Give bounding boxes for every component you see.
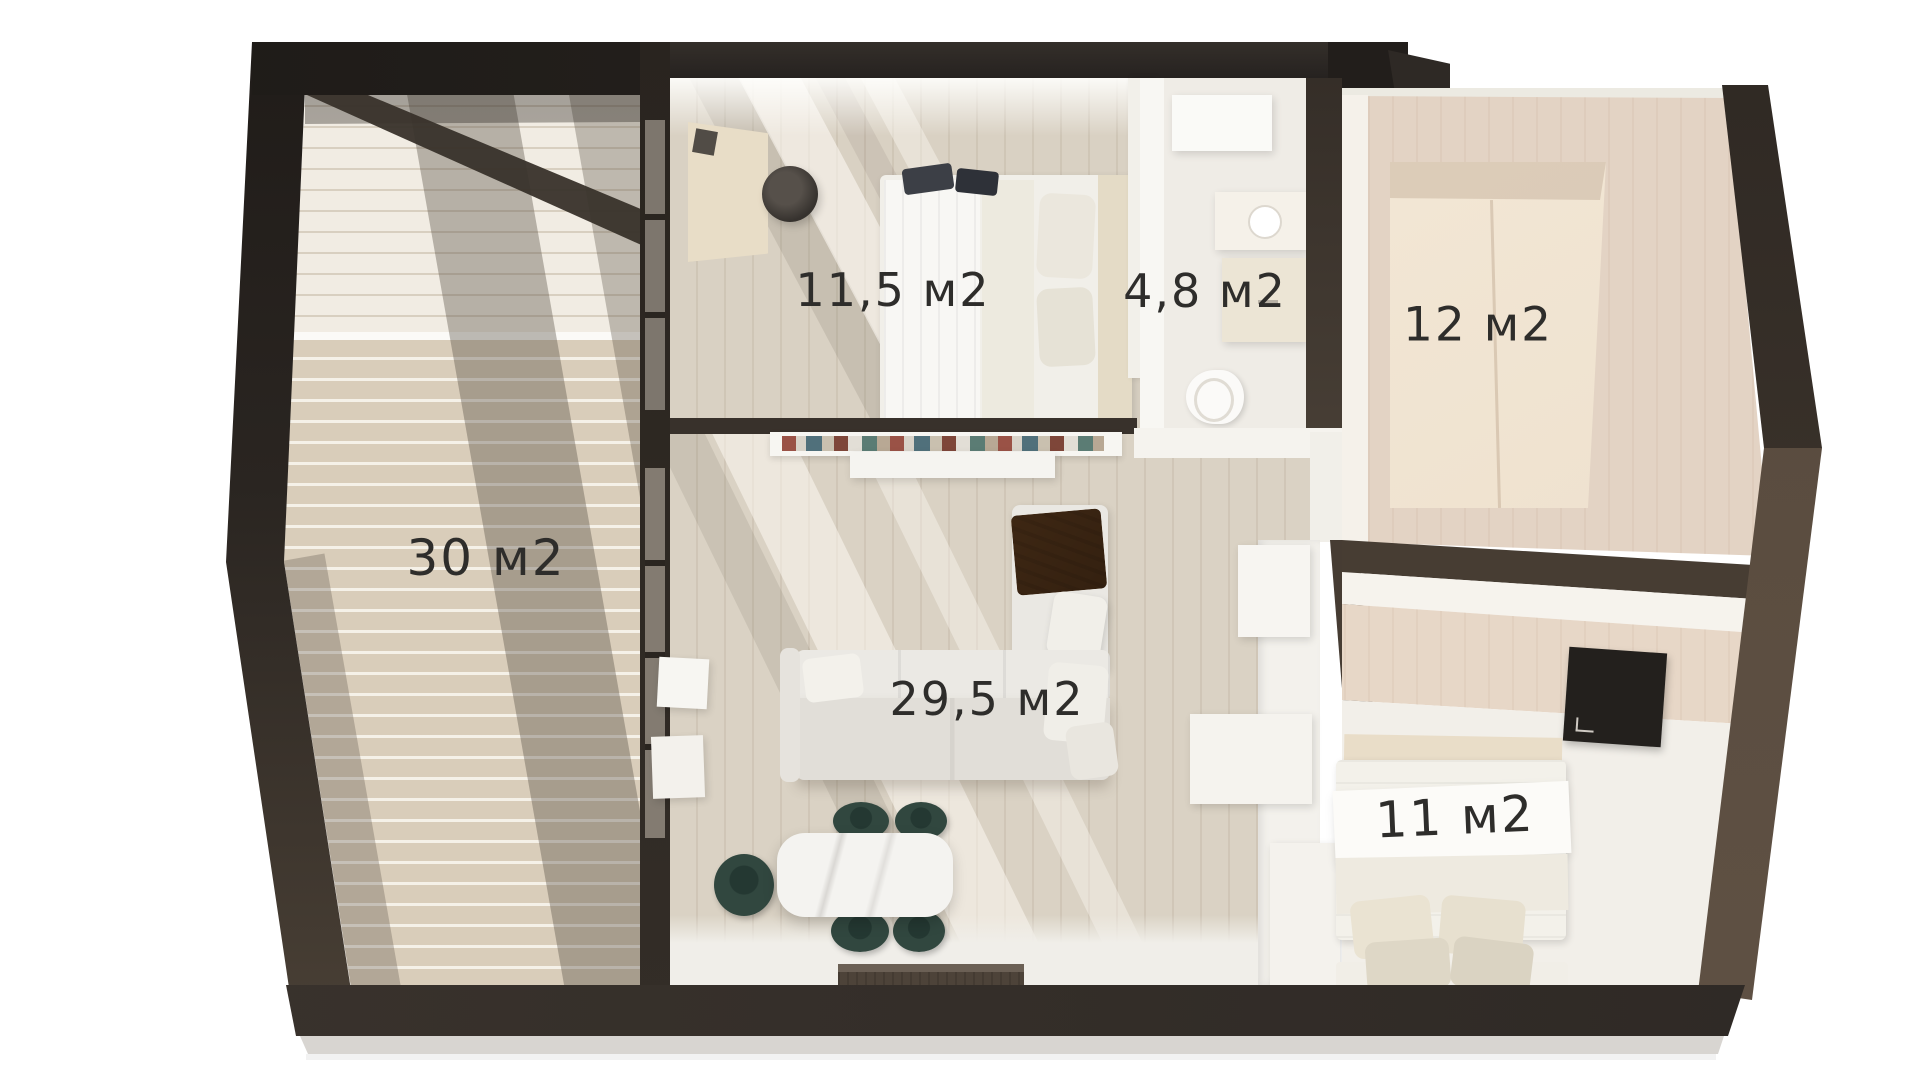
books: [782, 436, 1104, 451]
window-mullion: [645, 312, 665, 318]
tv-logo: [1576, 717, 1595, 732]
console-shelf: [850, 452, 1055, 478]
dining-table: [777, 833, 953, 917]
area-label-bathroom: 4,8 м2: [1123, 264, 1287, 318]
sofa-cushion: [802, 653, 865, 704]
throw-blanket: [1011, 508, 1108, 596]
bed-pillow: [1036, 287, 1096, 368]
window-sill: [657, 657, 710, 710]
top-wall: [645, 42, 1407, 78]
bed2-pillow: [1364, 937, 1451, 993]
closet-block: [1190, 714, 1312, 804]
area-label-living: 29,5 м2: [889, 672, 1084, 726]
bathroom-lit-wall: [1140, 78, 1164, 430]
bathroom-shelf: [1172, 95, 1272, 151]
tv: [1563, 647, 1667, 748]
desk-chair: [762, 166, 818, 222]
floor-plan: 30 м2 11,5 м2 4,8 м2 12 м2 29,5 м2 11 м2: [0, 0, 1920, 1080]
toilet-seat: [1194, 378, 1234, 422]
area-label-bedroom: 11,5 м2: [795, 263, 990, 317]
bedroom-lit-wall: [668, 78, 1140, 136]
area-label-terrace: 30 м2: [406, 529, 565, 587]
area-label-bedroom2: 11 м2: [1374, 785, 1535, 850]
window-sill: [651, 735, 705, 799]
closet-block: [1238, 545, 1310, 637]
desk-accessory: [692, 128, 718, 155]
washbasin: [1248, 205, 1282, 239]
window-mullion: [645, 214, 665, 220]
closet-block: [1270, 843, 1340, 985]
dining-chair: [714, 854, 774, 916]
clothes-on-bed: [955, 168, 999, 196]
dressing-lit-wall: [1342, 95, 1368, 543]
bottom-sill-shadow: [306, 1054, 1716, 1060]
area-label-dressing: 12 м2: [1403, 298, 1553, 353]
sofa-cushion: [1064, 721, 1119, 781]
window-mullion: [645, 560, 665, 566]
sofa-armrest: [780, 648, 800, 782]
window-glass: [645, 120, 665, 410]
bathroom-right-wall: [1306, 78, 1342, 438]
bed-pillow: [1036, 193, 1096, 280]
